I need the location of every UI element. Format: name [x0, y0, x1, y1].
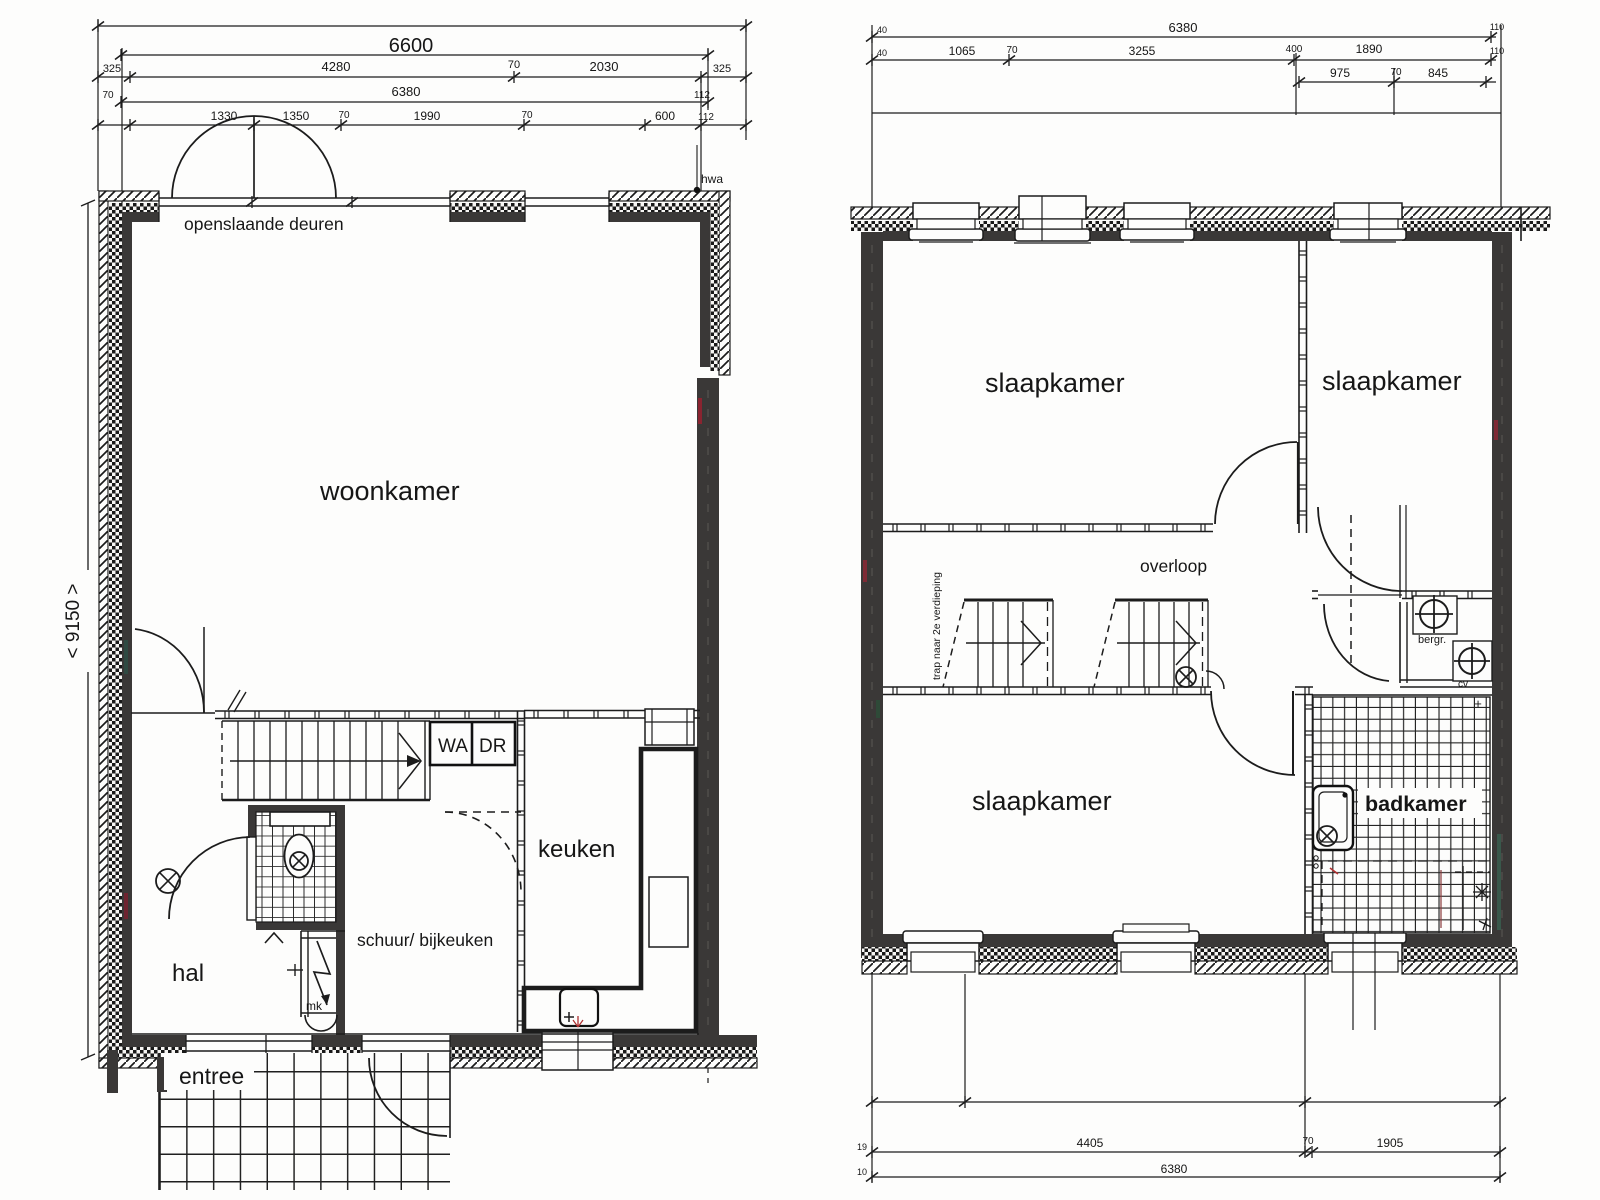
svg-text:overloop: overloop	[1140, 556, 1207, 576]
svg-text:70: 70	[1390, 67, 1402, 78]
svg-text:1065: 1065	[949, 44, 976, 58]
svg-text:woonkamer: woonkamer	[319, 476, 460, 506]
svg-text:6380: 6380	[1161, 1162, 1188, 1176]
svg-text:< 9150 >: < 9150 >	[63, 583, 84, 658]
svg-text:DR: DR	[479, 736, 506, 757]
svg-text:4405: 4405	[1077, 1136, 1104, 1150]
svg-text:keuken: keuken	[538, 836, 615, 863]
svg-text:cv: cv	[1458, 679, 1468, 690]
svg-text:2030: 2030	[590, 59, 619, 74]
svg-text:4280: 4280	[322, 59, 351, 74]
svg-text:1890: 1890	[1356, 42, 1383, 56]
svg-text:975: 975	[1330, 66, 1350, 80]
svg-text:19: 19	[857, 1142, 867, 1152]
svg-text:40: 40	[877, 48, 887, 58]
svg-text:trap naar 2e verdieping: trap naar 2e verdieping	[931, 572, 943, 680]
svg-text:6380: 6380	[392, 84, 421, 99]
svg-text:slaapkamer: slaapkamer	[985, 368, 1125, 398]
svg-text:400: 400	[1286, 44, 1303, 55]
svg-text:70: 70	[102, 90, 114, 101]
svg-text:schuur/ bijkeuken: schuur/ bijkeuken	[357, 930, 493, 950]
svg-text:1905: 1905	[1377, 1136, 1404, 1150]
svg-text:10: 10	[857, 1167, 867, 1177]
svg-text:openslaande deuren: openslaande deuren	[184, 214, 344, 234]
svg-text:bergr.: bergr.	[1418, 634, 1446, 646]
svg-text:+: +	[1474, 696, 1482, 711]
svg-text:112: 112	[694, 90, 710, 101]
svg-text:1990: 1990	[414, 109, 441, 123]
svg-text:845: 845	[1428, 66, 1448, 80]
svg-text:slaapkamer: slaapkamer	[1322, 366, 1462, 396]
svg-text:1350: 1350	[283, 109, 310, 123]
svg-text:3255: 3255	[1129, 44, 1156, 58]
svg-text:110: 110	[1490, 46, 1504, 56]
svg-text:70: 70	[338, 110, 350, 121]
svg-text:hwa: hwa	[701, 172, 723, 186]
svg-text:70: 70	[508, 59, 520, 71]
svg-text:6380: 6380	[1169, 20, 1198, 35]
svg-text:40: 40	[877, 25, 887, 35]
svg-text:entree: entree	[179, 1063, 244, 1089]
svg-text:badkamer: badkamer	[1365, 792, 1467, 816]
svg-text:WA: WA	[438, 736, 468, 757]
svg-text:112: 112	[698, 112, 714, 123]
svg-text:600: 600	[655, 109, 675, 123]
svg-text:110: 110	[1490, 22, 1504, 32]
svg-text:hal: hal	[172, 960, 204, 987]
svg-text:70: 70	[1006, 45, 1018, 56]
svg-text:slaapkamer: slaapkamer	[972, 786, 1112, 816]
svg-text:70: 70	[1302, 1136, 1314, 1147]
svg-text:70: 70	[521, 110, 533, 121]
svg-text:6600: 6600	[389, 35, 434, 57]
svg-text:mk: mk	[306, 999, 323, 1013]
svg-text:325: 325	[103, 63, 121, 75]
svg-text:325: 325	[713, 63, 731, 75]
